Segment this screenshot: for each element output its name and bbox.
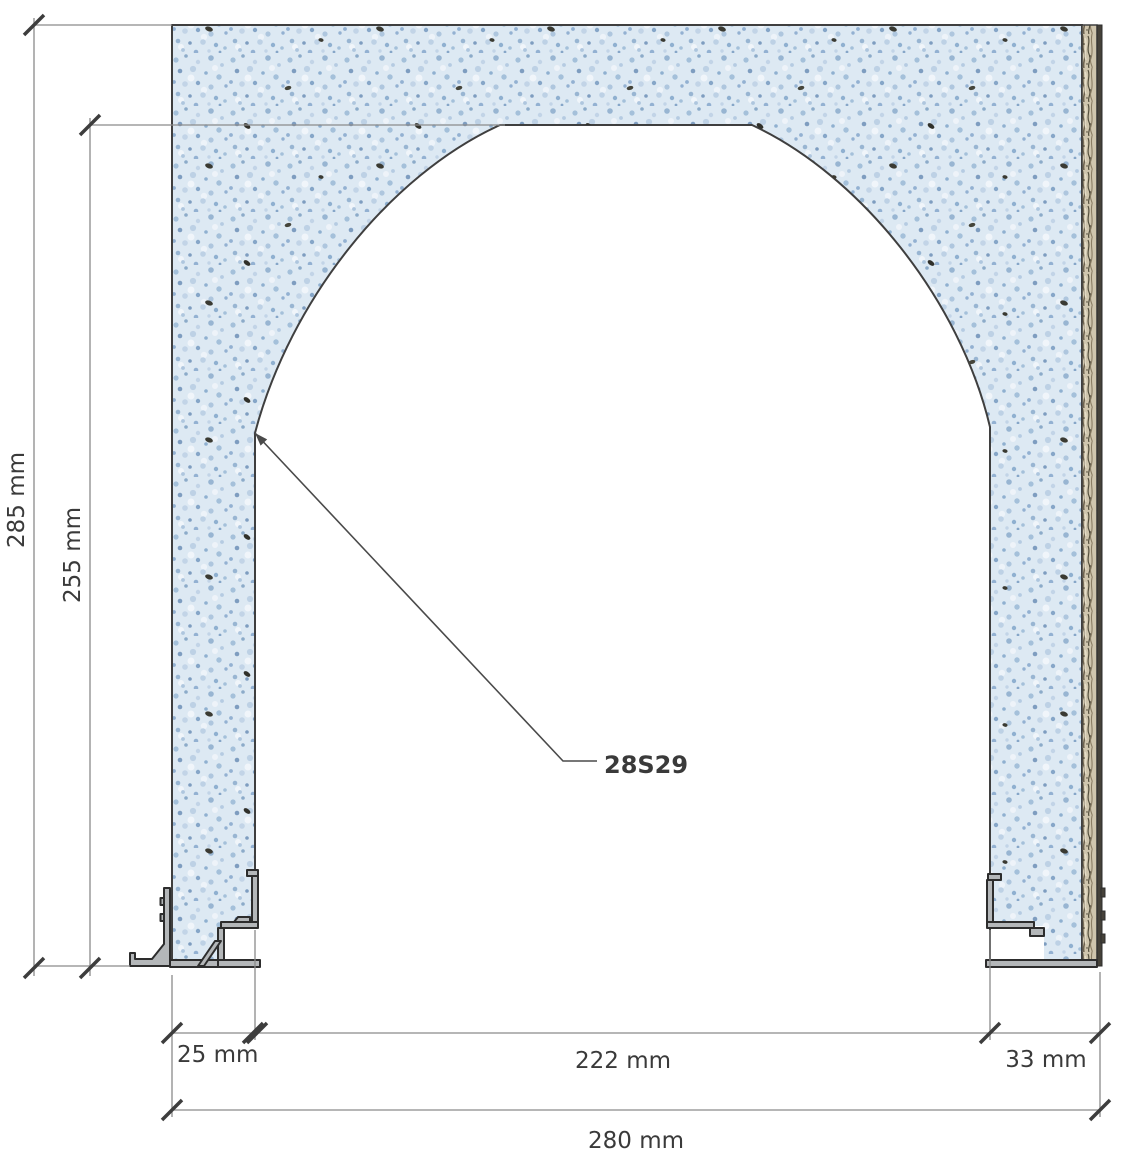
right-clip-bump <box>1101 911 1105 920</box>
right-clip-bump <box>1101 888 1105 897</box>
right-clip-bump <box>1101 934 1105 943</box>
dim-right-jamb-label: 33 mm <box>1005 1047 1086 1073</box>
leader-line <box>255 433 597 761</box>
left-notch-cutout <box>224 926 256 962</box>
section-drawing-page: 285 mm 255 mm 25 mm 222 mm 33 mm 280 mm … <box>0 0 1138 1159</box>
left-skirting-clip <box>161 898 165 905</box>
right-track-step <box>1030 928 1044 936</box>
product-label: 28S29 <box>604 751 688 779</box>
left-track-bump <box>234 917 250 922</box>
wall-section-drawing: 285 mm 255 mm 25 mm 222 mm 33 mm 280 mm … <box>0 0 1138 1159</box>
dim-total-height-label: 285 mm <box>4 452 30 548</box>
wall-flecks-overlay <box>172 25 1082 963</box>
wall-cross-section <box>172 25 1082 963</box>
insulation-strip <box>1082 25 1105 966</box>
left-skirting-clip <box>161 914 165 921</box>
dim-opening-height-label: 255 mm <box>60 507 86 603</box>
left-track-face <box>252 876 258 922</box>
dim-total-width-label: 280 mm <box>588 1128 684 1154</box>
right-base-plate <box>986 960 1097 967</box>
right-track-top <box>987 922 1034 928</box>
dimension-labels: 285 mm 255 mm 25 mm 222 mm 33 mm 280 mm <box>4 452 1087 1154</box>
right-track-face <box>987 880 993 926</box>
dim-opening-width-label: 222 mm <box>575 1048 671 1074</box>
dim-left-jamb-label: 25 mm <box>177 1042 258 1068</box>
product-callout: 28S29 <box>255 433 688 779</box>
right-edge-band <box>1097 25 1102 966</box>
fiber-board <box>1082 25 1097 963</box>
left-track-bottom <box>218 960 260 967</box>
